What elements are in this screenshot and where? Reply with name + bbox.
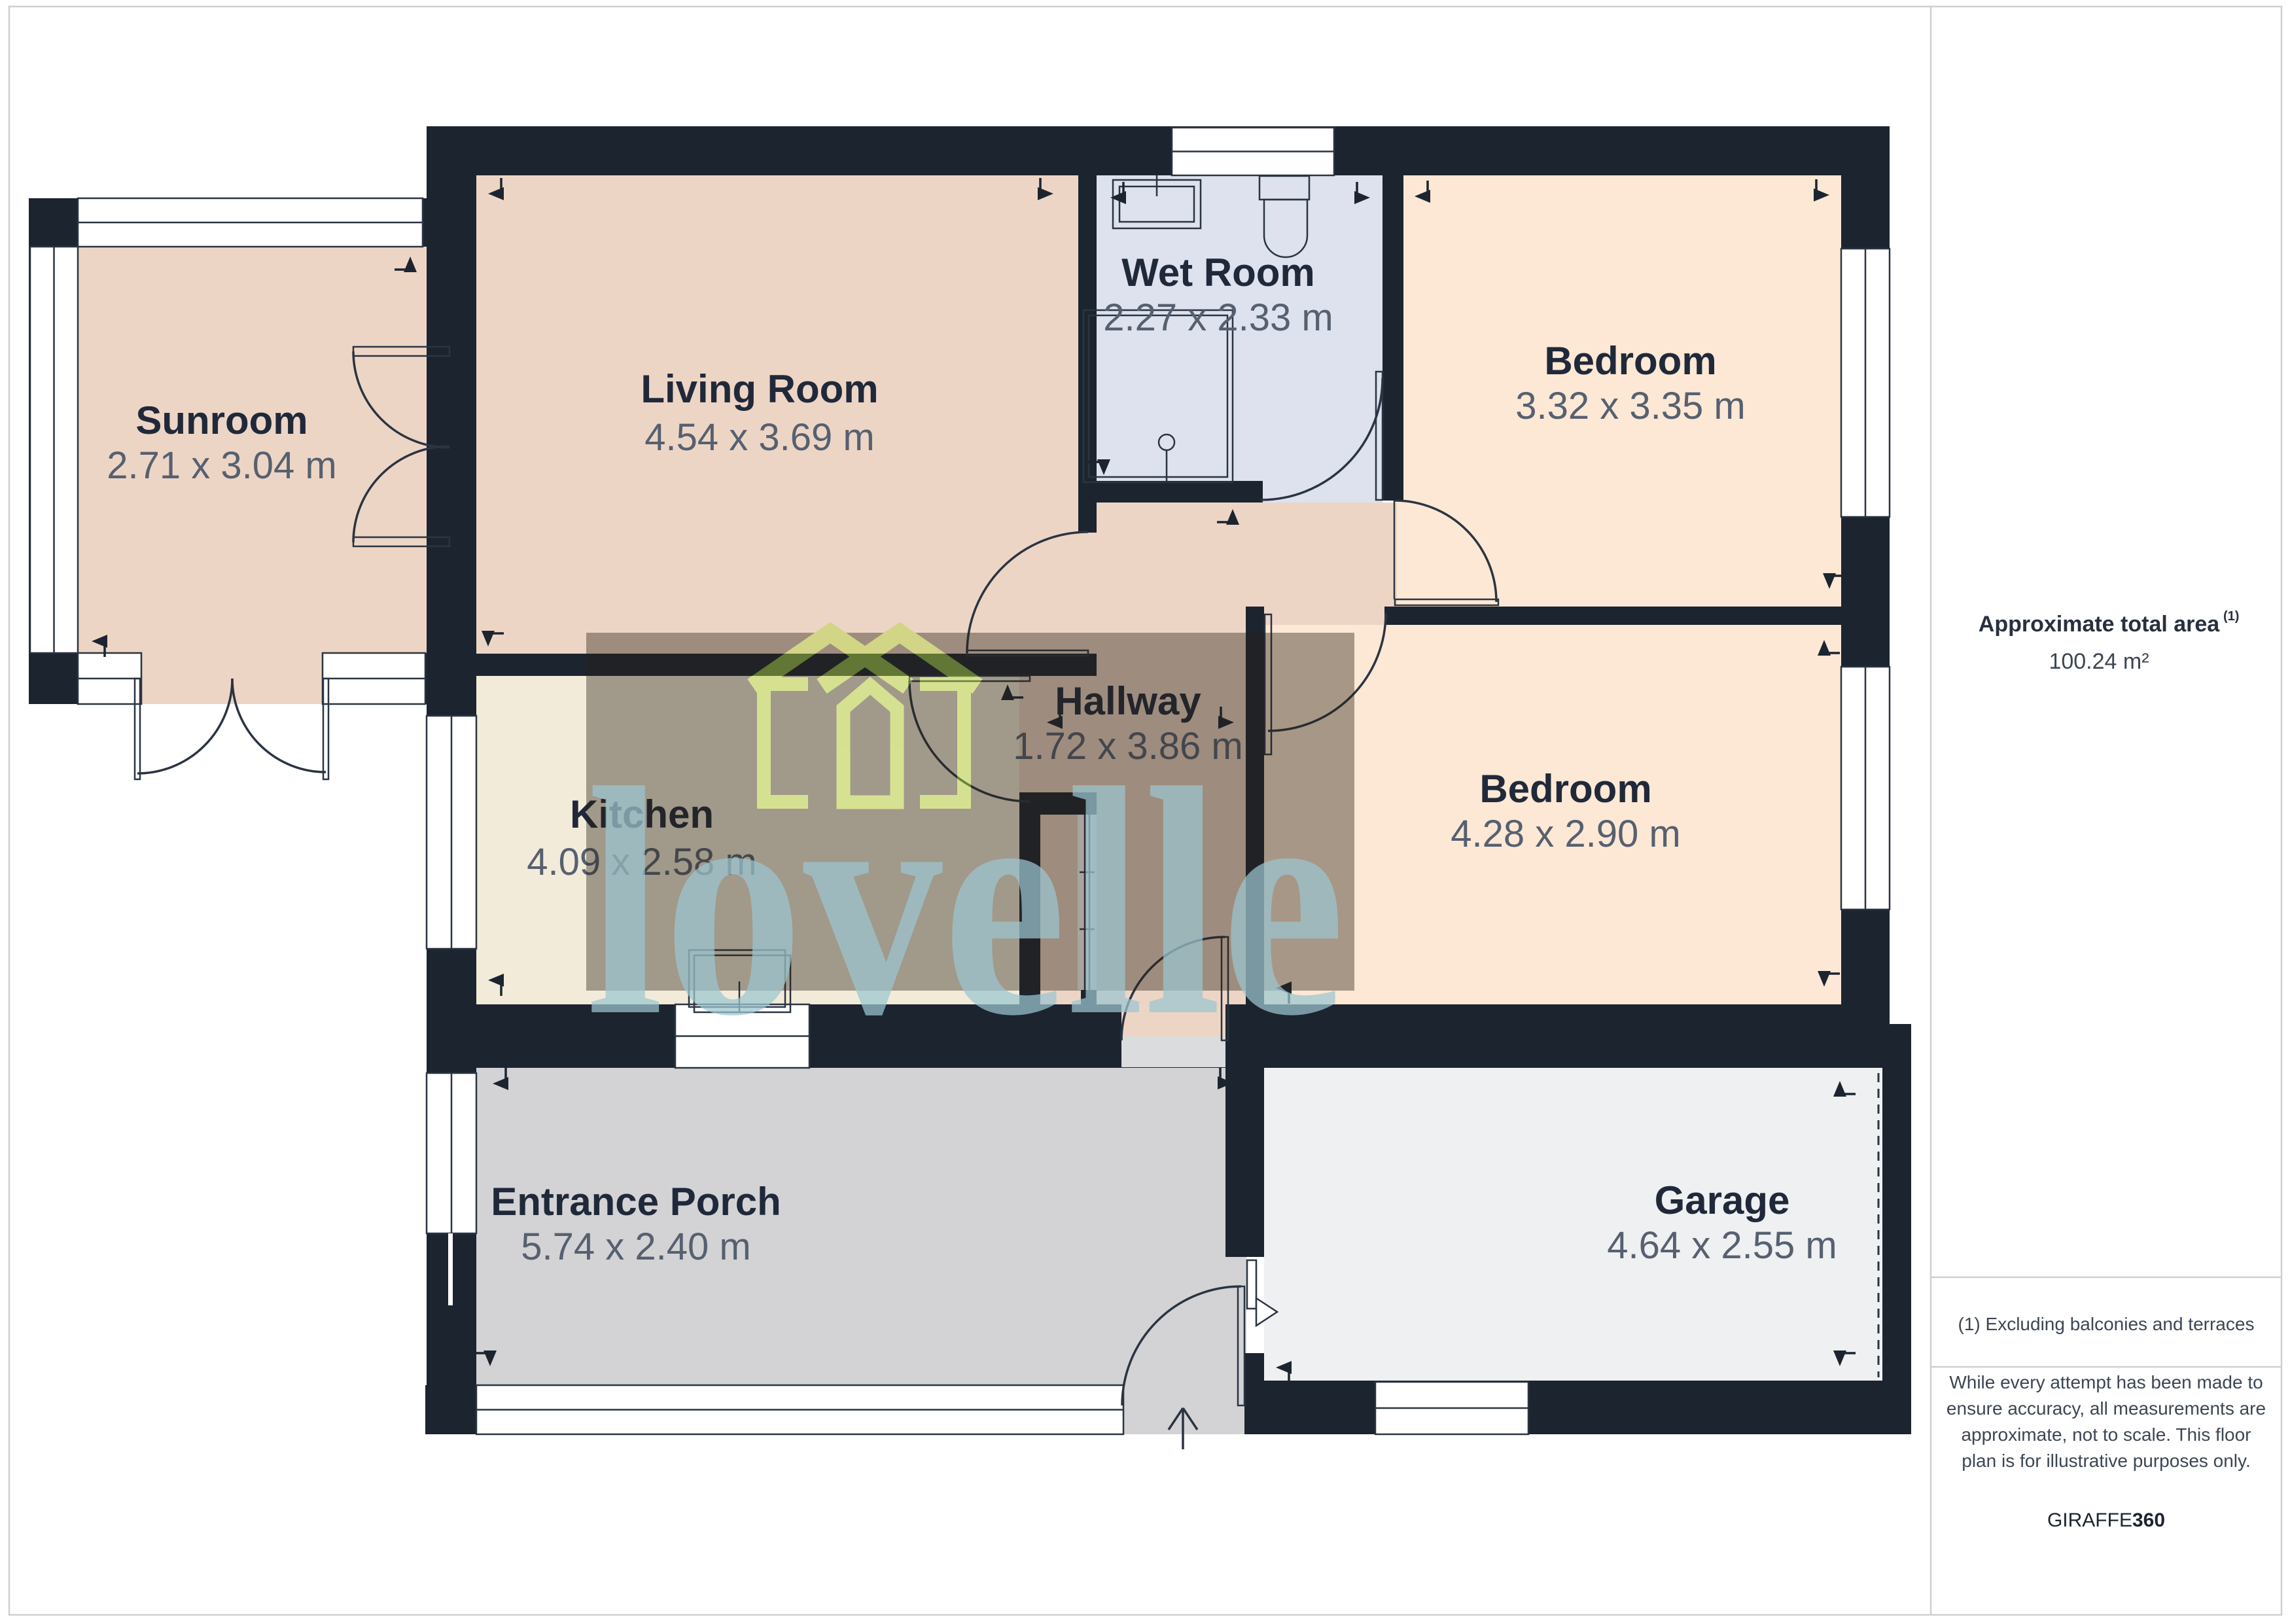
svg-text:Entrance Porch: Entrance Porch: [491, 1180, 781, 1224]
svg-text:(1) Excluding balconies and te: (1) Excluding balconies and terraces: [1958, 1314, 2255, 1334]
svg-text:Wet Room: Wet Room: [1121, 251, 1315, 294]
svg-text:4.28 x 2.90 m: 4.28 x 2.90 m: [1451, 813, 1680, 855]
svg-text:Living Room: Living Room: [641, 367, 878, 411]
svg-text:2.71 x 3.04 m: 2.71 x 3.04 m: [107, 444, 336, 487]
svg-text:ensure accuracy, all measureme: ensure accuracy, all measurements are: [1946, 1398, 2266, 1419]
svg-text:4.54 x 3.69 m: 4.54 x 3.69 m: [644, 416, 874, 459]
svg-text:(1): (1): [2223, 609, 2239, 624]
svg-text:Bedroom: Bedroom: [1544, 339, 1716, 383]
svg-text:GIRAFFE360: GIRAFFE360: [2047, 1509, 2165, 1531]
svg-text:plan is for illustrative purpo: plan is for illustrative purposes only.: [1962, 1451, 2250, 1471]
svg-text:5.74 x 2.40 m: 5.74 x 2.40 m: [521, 1226, 750, 1268]
svg-text:lovelle: lovelle: [586, 721, 1345, 1084]
svg-text:3.32 x 3.35 m: 3.32 x 3.35 m: [1515, 385, 1745, 427]
svg-text:approximate, not to scale. Thi: approximate, not to scale. This floor: [1961, 1424, 2251, 1445]
svg-text:While every attempt has been m: While every attempt has been made to: [1949, 1372, 2263, 1392]
svg-text:Bedroom: Bedroom: [1479, 767, 1651, 811]
svg-text:2.27 x 2.33 m: 2.27 x 2.33 m: [1103, 296, 1333, 339]
svg-text:Garage: Garage: [1655, 1178, 1790, 1222]
svg-text:4.64 x 2.55 m: 4.64 x 2.55 m: [1607, 1224, 1837, 1267]
svg-text:100.24 m²: 100.24 m²: [2049, 649, 2149, 674]
svg-text:Sunroom: Sunroom: [135, 398, 308, 442]
svg-text:Approximate total area: Approximate total area: [1979, 612, 2221, 637]
